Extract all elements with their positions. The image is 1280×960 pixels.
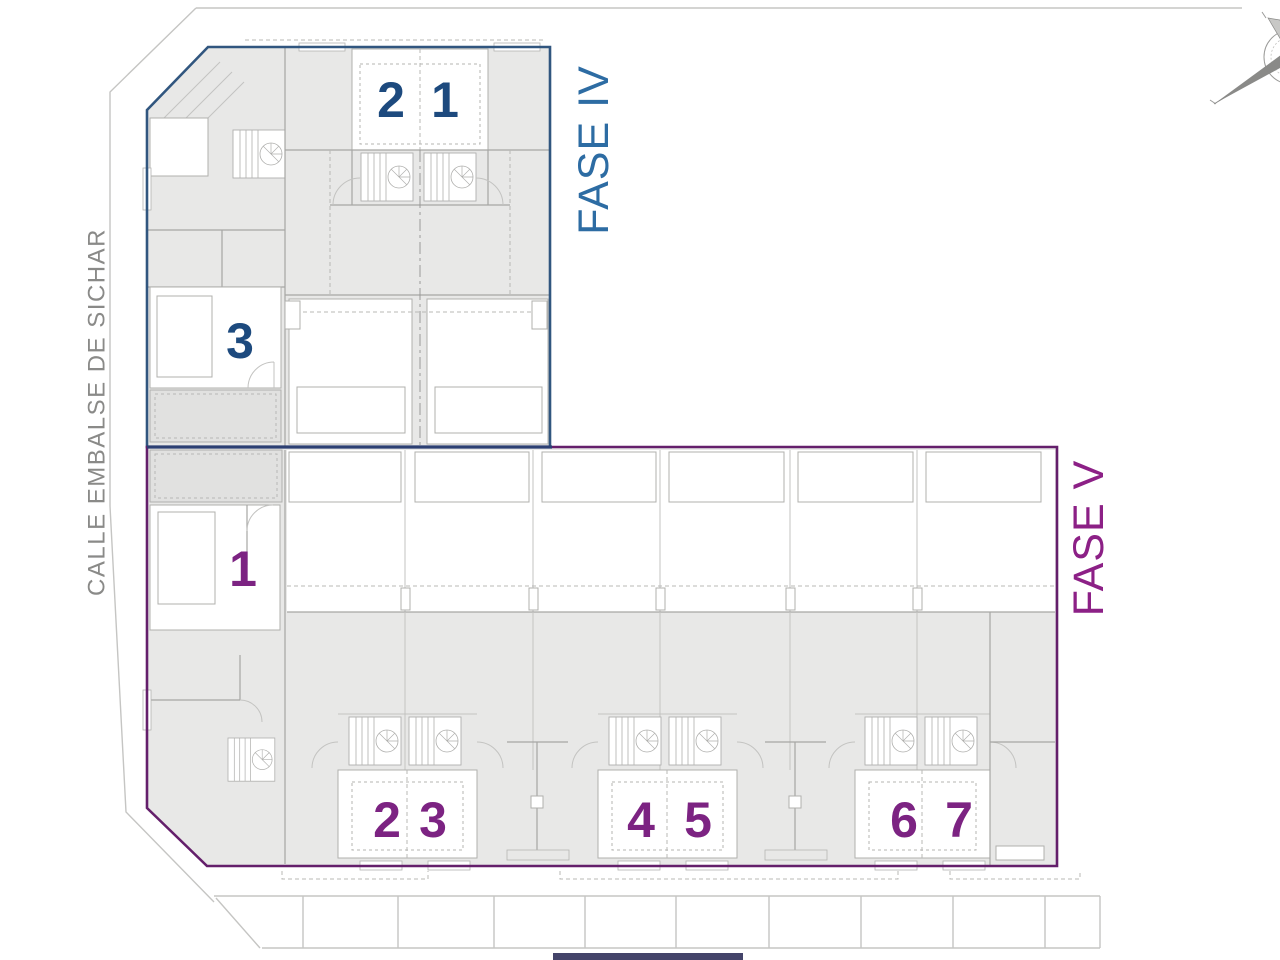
fase5-label: FASE V (1065, 460, 1113, 617)
street-name-label: CALLE EMBALSE DE SICHAR (84, 228, 111, 596)
fase5-unit-5-number: 5 (684, 792, 712, 848)
dimension-marks (282, 871, 1080, 879)
fase4-unit-3-number: 3 (226, 313, 254, 369)
site-plan: CALLE EMBALSE DE SICHAR FASE IV FASE V 2… (0, 0, 1280, 960)
site-plan-page: CALLE EMBALSE DE SICHAR FASE IV FASE V 2… (0, 0, 1280, 960)
fase5-unit-7-number: 7 (945, 792, 973, 848)
compass-rose-icon (1210, 12, 1280, 104)
fase4-label: FASE IV (570, 65, 618, 235)
fase5-unit-2-number: 2 (373, 792, 401, 848)
fase5-unit-3-number: 3 (419, 792, 447, 848)
fase4-unit-1-number: 1 (431, 72, 459, 128)
fase4-unit-2-number: 2 (377, 72, 405, 128)
fase5-block (143, 447, 1057, 870)
bottom-edge-marker (553, 953, 743, 960)
fase5-unit-6-number: 6 (890, 792, 918, 848)
fase5-unit-4-number: 4 (627, 792, 655, 848)
parking-row (214, 896, 1100, 948)
fase4-block (143, 43, 550, 447)
fase5-unit-1-number: 1 (229, 541, 257, 597)
